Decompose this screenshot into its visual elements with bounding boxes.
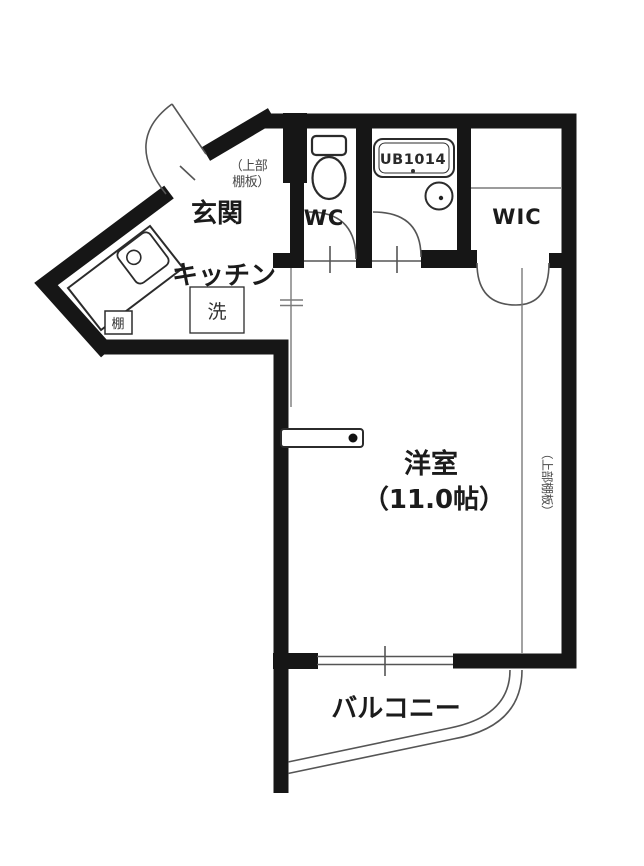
floorplan-canvas: 棚 洗 玄関 （上部 棚板） キ [0,0,644,866]
floorplan-drawing: 棚 洗 玄関 （上部 棚板） キ [0,0,644,866]
room-upper-shelf-note: （上部棚板） [540,447,555,516]
washer-label: 洗 [207,301,226,323]
bathroom-sink-icon [426,183,453,210]
entrance-label: 玄関 [191,198,243,229]
entrance-door-arc [146,104,172,194]
balcony-window [317,646,453,676]
wic-label: WIC [492,205,541,229]
wic-door-left-arc [477,263,516,305]
unit-bath-label: UB1014 [380,152,446,168]
entrance-door-tick [180,166,195,180]
wall-wc-bottom-stub [273,253,304,268]
shelf-label: 棚 [111,317,124,332]
wall-entrance-wc-chunk [283,113,307,183]
wall-kitchen-bottom-and-left [100,347,281,793]
wall-top-right-bottom [262,121,569,661]
toilet-icon [312,136,346,199]
living-room-label: 洋室 [404,448,458,480]
wall-wic-bottom-stub [549,253,563,268]
entrance-upper-shelf-note: （上部 棚板） [230,155,273,190]
kitchen-label: キッチン [172,261,276,291]
wall-ub-bottom-corner [421,250,477,268]
wic-door-right-arc [516,263,549,305]
entrance-door-leaf [172,104,206,154]
wc-label: WC [304,206,345,230]
balcony-label: バルコニー [331,694,460,724]
wall-ub-wic [457,128,471,253]
living-room-size: （11.0帖） [363,485,505,515]
wall-wc-ub [356,128,372,268]
partition-end-post [349,434,358,443]
